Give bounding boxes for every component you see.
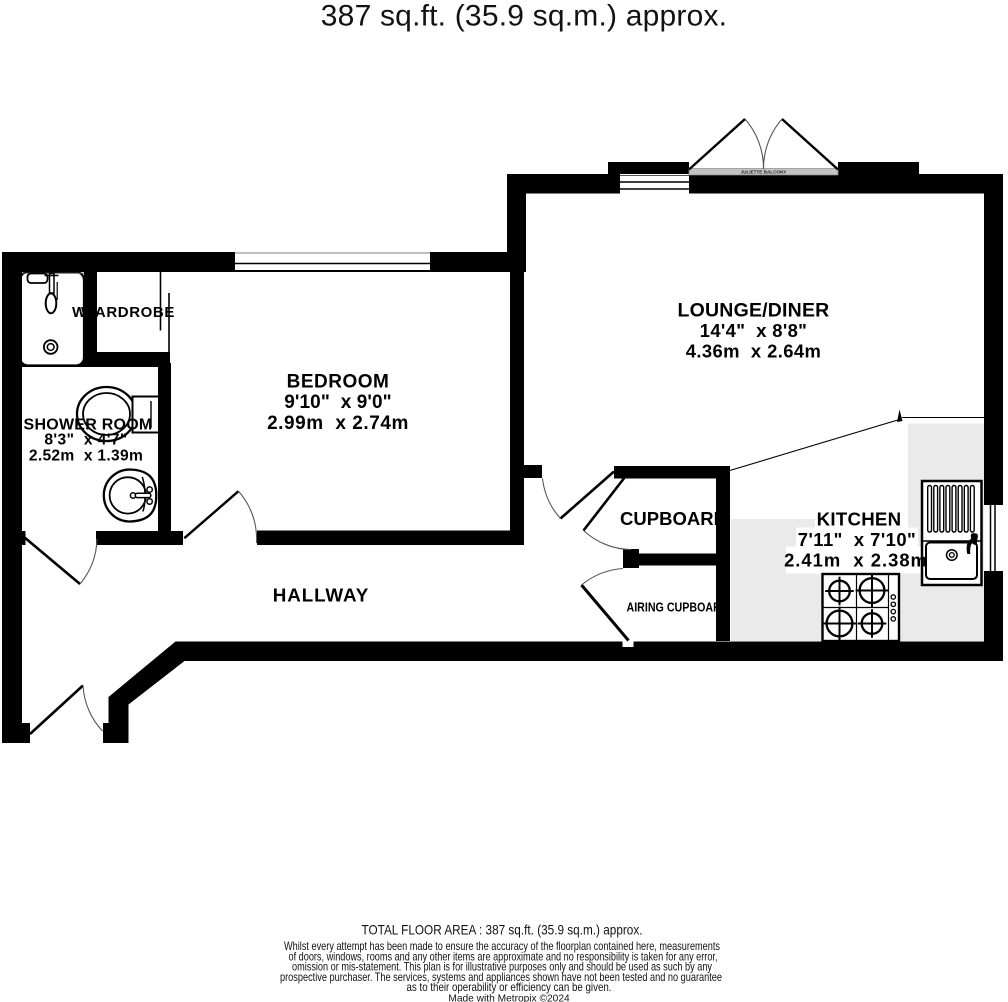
svg-text:2.41m x 2.38m: 2.41m x 2.38m (784, 550, 928, 571)
svg-text:Made with Metropix ©2024: Made with Metropix ©2024 (448, 994, 570, 1002)
svg-text:as to their operability or eff: as to their operability or efficiency ca… (407, 980, 612, 994)
svg-text:HALLWAY: HALLWAY (273, 585, 369, 606)
svg-text:4.36m x 2.64m: 4.36m x 2.64m (686, 341, 821, 362)
svg-text:2.99m x 2.74m: 2.99m x 2.74m (267, 413, 409, 434)
svg-text:8'3" x 4'7": 8'3" x 4'7" (44, 432, 127, 449)
svg-text:JULIETTE BALCONY: JULIETTE BALCONY (741, 170, 787, 175)
svg-text:TOTAL FLOOR AREA : 387 sq.ft.: TOTAL FLOOR AREA : 387 sq.ft. (35.9 sq.m… (362, 922, 643, 938)
svg-text:AIRING CUPBOARD: AIRING CUPBOARD (627, 601, 729, 615)
svg-text:2.52m x 1.39m: 2.52m x 1.39m (29, 448, 143, 465)
svg-text:CUPBOARD: CUPBOARD (620, 508, 727, 529)
svg-text:LOUNGE/DINER: LOUNGE/DINER (678, 300, 830, 322)
svg-text:14'4" x 8'8": 14'4" x 8'8" (700, 320, 807, 341)
svg-text:9'10" x 9'0": 9'10" x 9'0" (284, 392, 392, 413)
svg-text:7'11" x 7'10": 7'11" x 7'10" (798, 529, 916, 550)
svg-text:387 sq.ft. (35.9 sq.m.) approx: 387 sq.ft. (35.9 sq.m.) approx. (321, 0, 727, 33)
svg-text:BEDROOM: BEDROOM (287, 372, 390, 393)
svg-text:KITCHEN: KITCHEN (817, 509, 902, 530)
